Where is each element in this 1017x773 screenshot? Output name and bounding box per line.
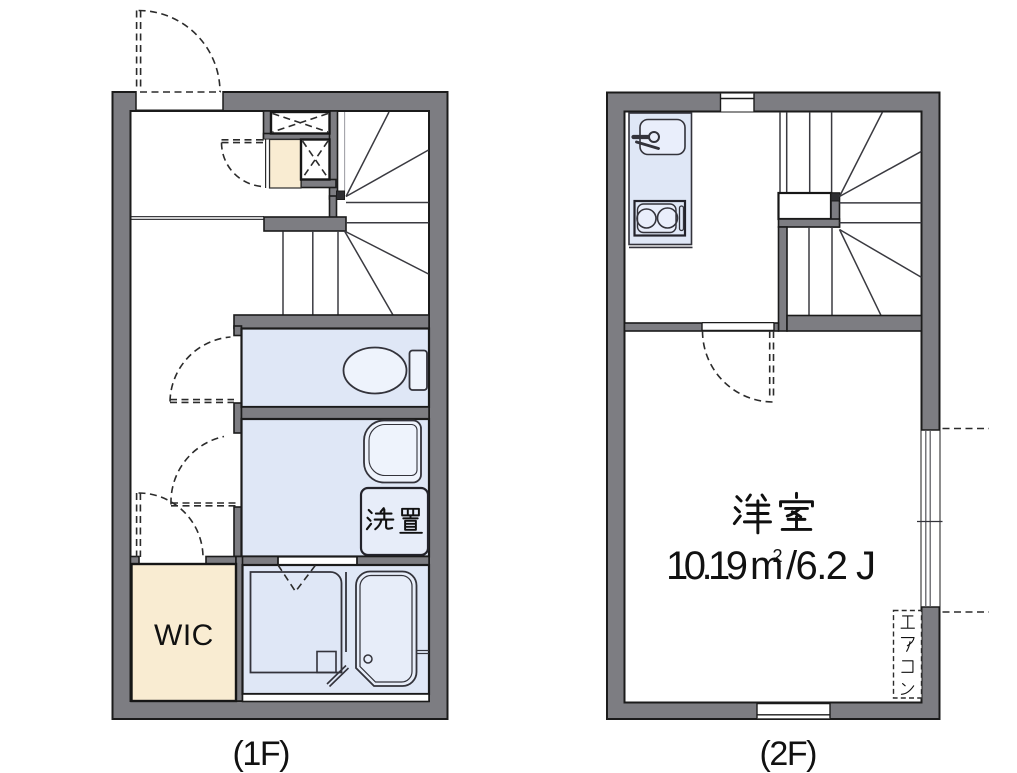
svg-text:(2F): (2F) xyxy=(760,735,818,773)
svg-text:(1F): (1F) xyxy=(233,735,291,773)
svg-text:10.19: 10.19 xyxy=(666,544,748,588)
svg-text:2: 2 xyxy=(773,546,783,566)
svg-text:/6.2 J: /6.2 J xyxy=(786,544,876,588)
svg-text:WIC: WIC xyxy=(154,619,214,652)
